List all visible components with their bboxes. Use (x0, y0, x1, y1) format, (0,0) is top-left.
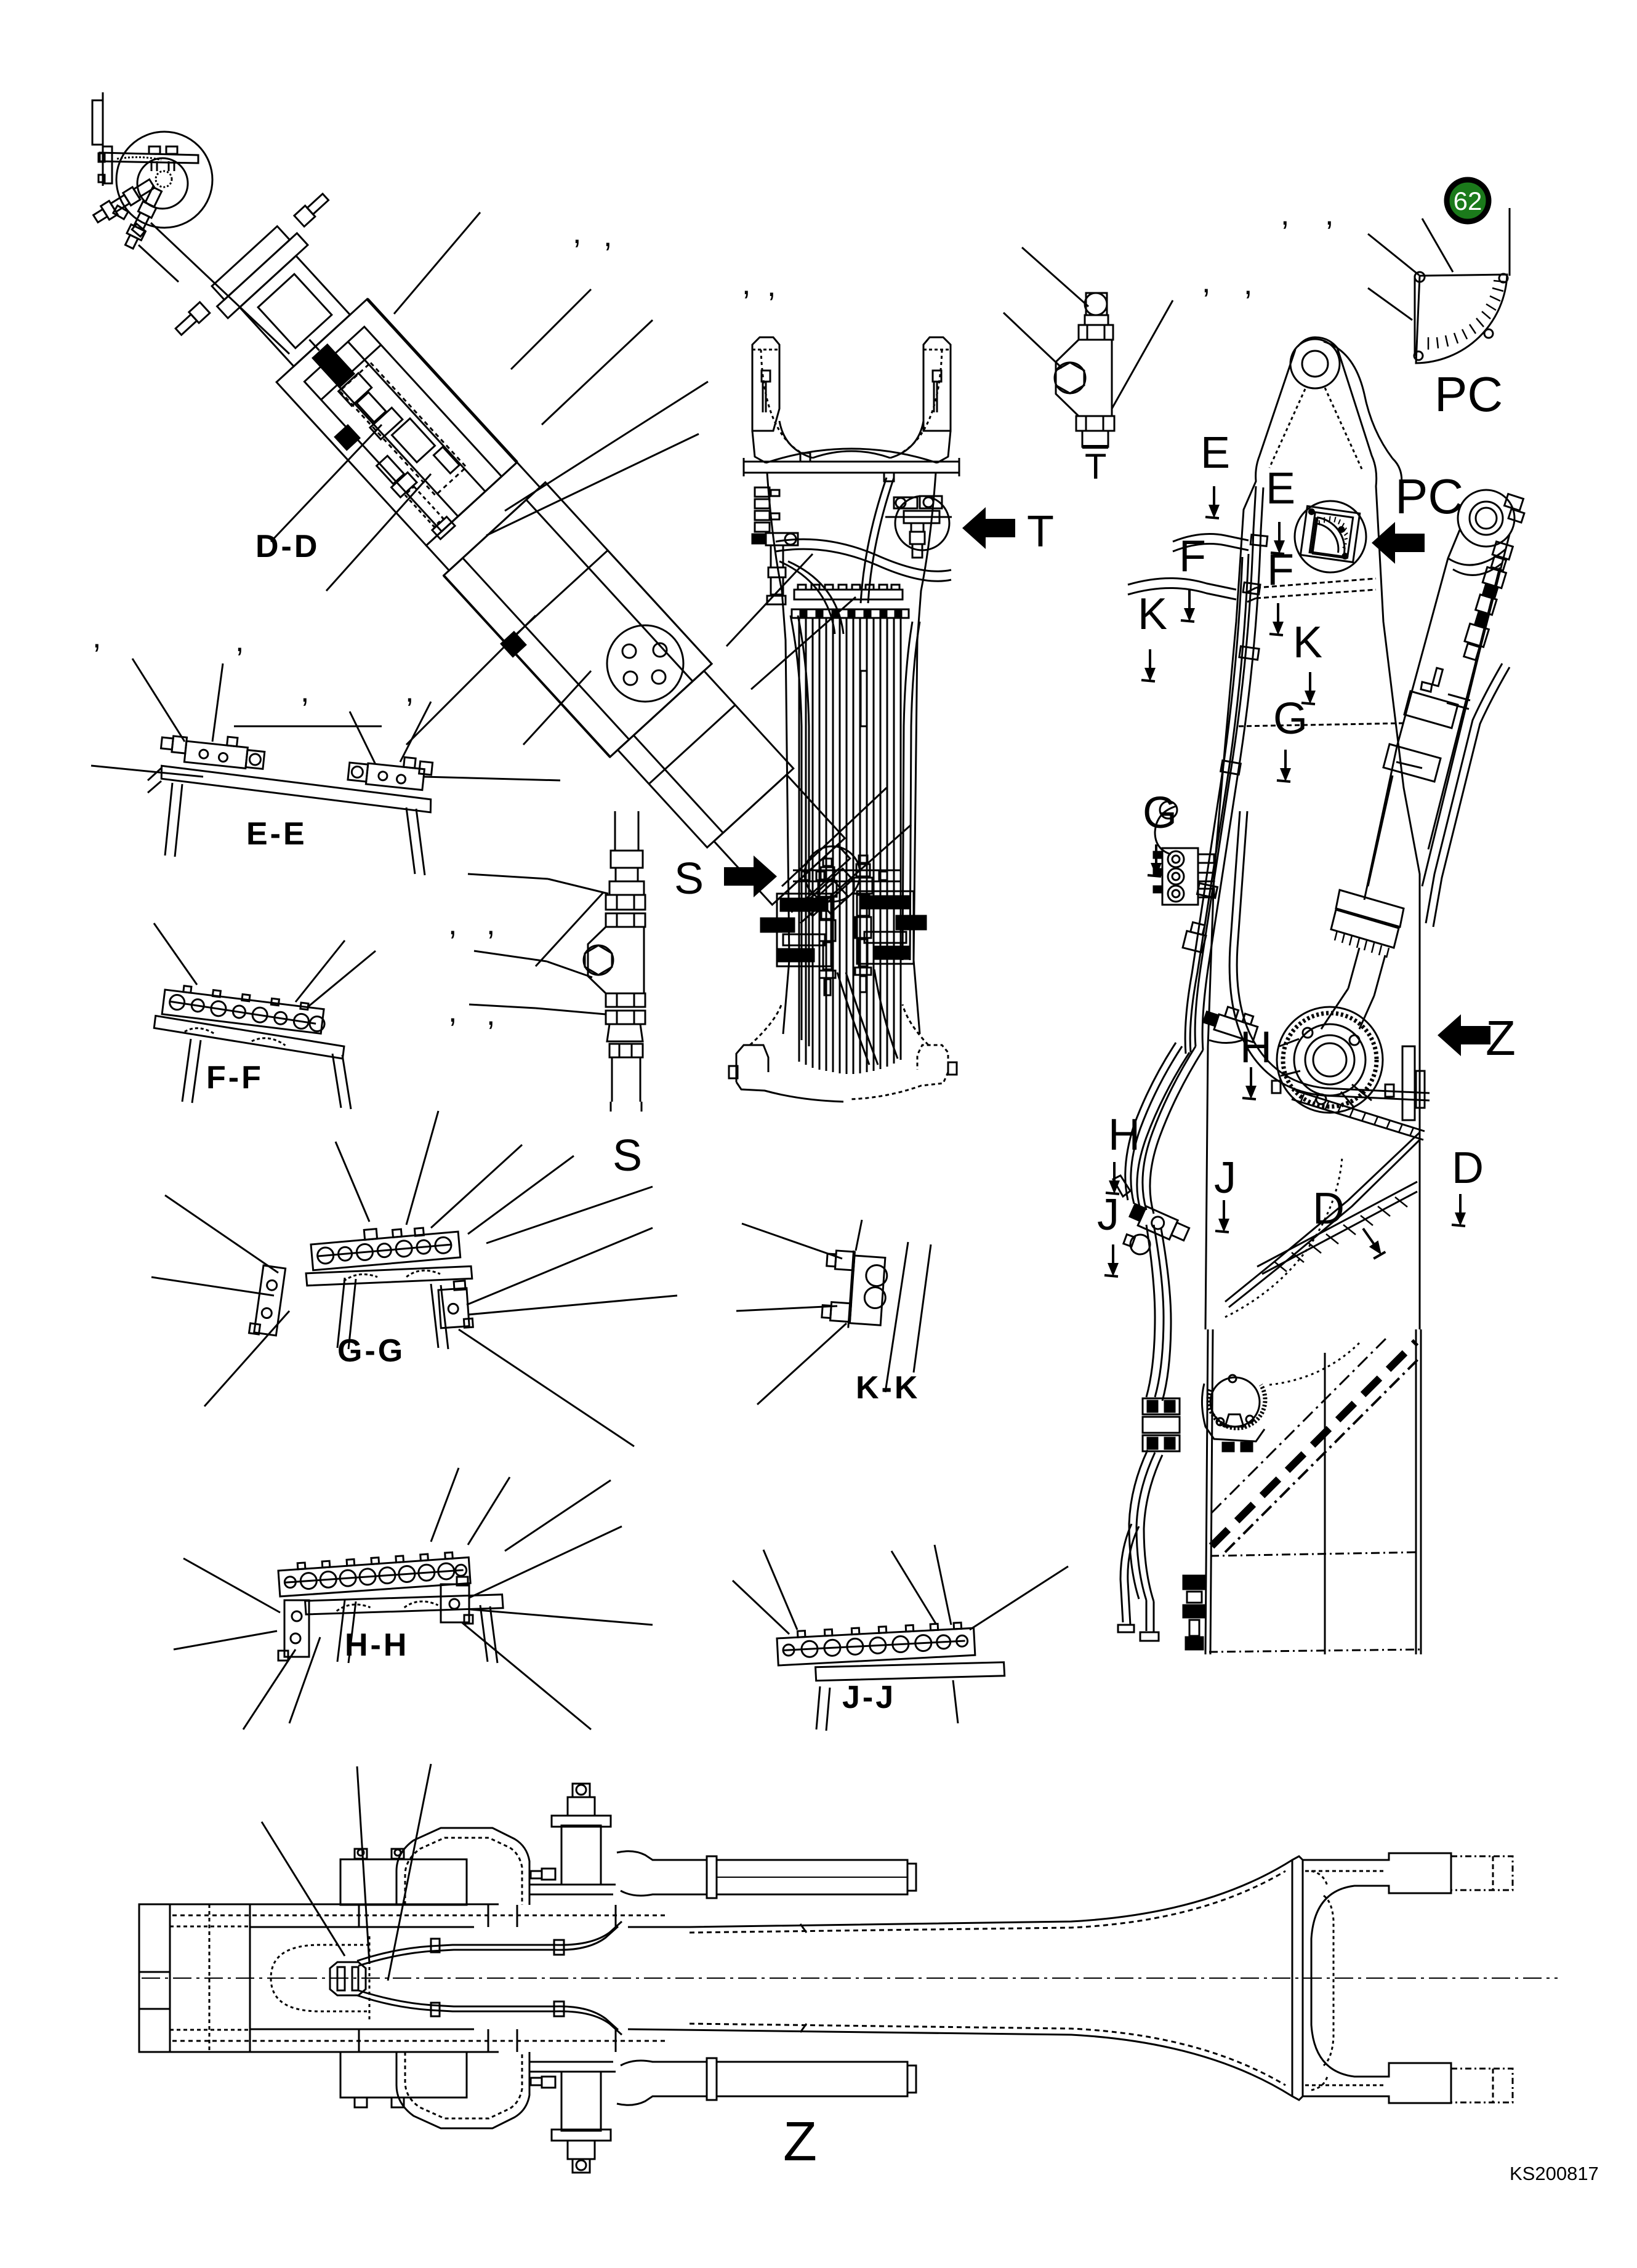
svg-text:,: , (1325, 196, 1333, 232)
svg-text:D: D (1313, 1184, 1345, 1233)
svg-text:G: G (1143, 788, 1177, 838)
svg-text:,: , (742, 266, 750, 302)
svg-text:,: , (573, 215, 581, 250)
svg-text:S: S (674, 854, 704, 904)
svg-text:G: G (1273, 694, 1308, 743)
svg-text:,: , (405, 673, 414, 709)
svg-text:,: , (448, 906, 457, 942)
svg-text:F-F: F-F (206, 1060, 263, 1096)
svg-text:,: , (300, 673, 309, 709)
svg-text:E: E (1266, 464, 1295, 513)
svg-text:E: E (1201, 428, 1230, 478)
svg-text:,: , (448, 993, 457, 1029)
svg-text:PC: PC (1434, 367, 1503, 422)
svg-text:F: F (1179, 532, 1206, 581)
svg-text:G-G: G-G (337, 1333, 405, 1369)
svg-text:,: , (1202, 264, 1210, 300)
svg-text:H: H (1240, 1023, 1272, 1072)
svg-text:,: , (235, 623, 244, 659)
svg-text:,: , (92, 619, 101, 655)
svg-text:,: , (767, 268, 776, 303)
svg-text:T: T (1027, 507, 1054, 556)
svg-text:S: S (613, 1131, 642, 1180)
svg-text:PC: PC (1395, 469, 1463, 524)
svg-text:,: , (486, 906, 495, 942)
svg-text:,: , (486, 996, 495, 1032)
svg-text:KS200817: KS200817 (1510, 2163, 1599, 2184)
svg-text:K: K (1293, 618, 1322, 667)
svg-text:H: H (1108, 1110, 1140, 1160)
svg-text:H-H: H-H (345, 1627, 409, 1663)
svg-text:,: , (1281, 196, 1289, 232)
svg-text:,: , (603, 218, 612, 254)
svg-text:Z: Z (783, 2111, 817, 2173)
svg-text:K: K (1138, 590, 1167, 639)
svg-text:,: , (1244, 266, 1252, 302)
svg-text:E-E: E-E (246, 816, 307, 852)
svg-text:62: 62 (1454, 186, 1482, 215)
svg-text:J-J: J-J (842, 1680, 896, 1715)
svg-text:D: D (1452, 1144, 1484, 1193)
svg-text:T: T (1085, 447, 1106, 487)
svg-text:J: J (1214, 1153, 1236, 1203)
svg-text:J: J (1097, 1190, 1119, 1240)
svg-text:D-D: D-D (255, 529, 320, 564)
svg-text:K-K: K-K (856, 1370, 920, 1406)
